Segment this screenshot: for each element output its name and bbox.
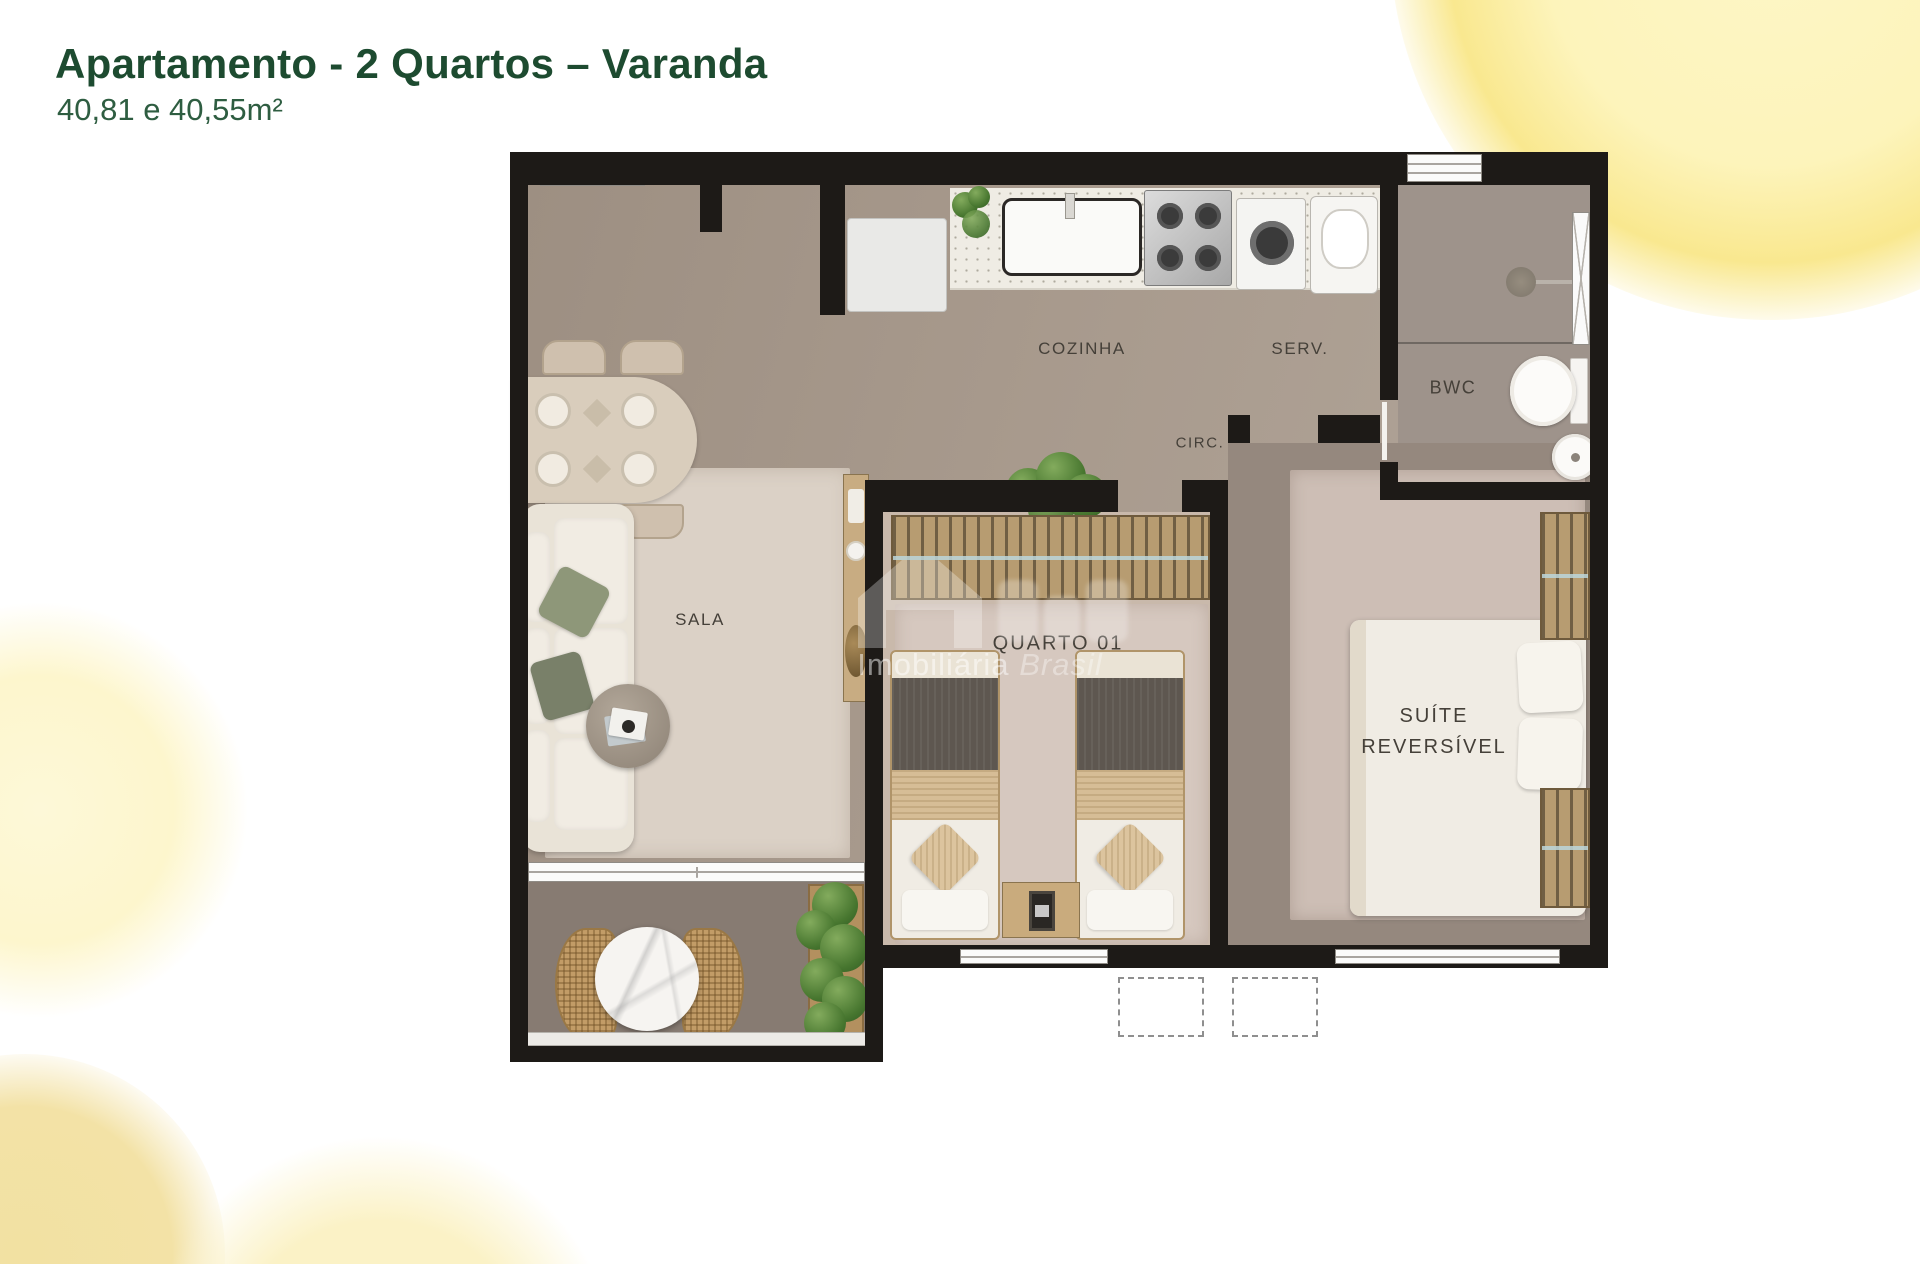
- suite-wardrobe-bottom: [1540, 788, 1590, 908]
- label-suite: SUÍTEREVERSÍVEL: [1361, 701, 1507, 763]
- balcony-plants: [790, 880, 870, 1046]
- balcony-sliding-door: [528, 862, 865, 882]
- laundry-tub: [1310, 196, 1378, 294]
- dining-chair: [620, 340, 684, 375]
- page-subtitle: 40,81 e 40,55m²: [57, 92, 283, 128]
- faucet: [1065, 193, 1075, 219]
- shower-arm: [1532, 280, 1574, 284]
- sofa: [522, 504, 634, 852]
- bwc-window: [1407, 154, 1482, 182]
- shower-glass-panel: [1572, 212, 1590, 345]
- counter-plant: [950, 186, 998, 252]
- bedroom1-window: [960, 949, 1108, 964]
- suite-pillow-1: [1516, 640, 1584, 713]
- label-servico: SERV.: [1271, 339, 1328, 359]
- balcony-marble-table: [595, 927, 699, 1031]
- dining-table: [513, 377, 697, 503]
- watermark-glyph: [998, 580, 1038, 642]
- watermark-glyph: [1044, 596, 1080, 642]
- kitchen-stub-wall: [700, 185, 722, 232]
- label-circulacao: CIRC.: [1176, 435, 1225, 452]
- dashed-extension-box-1: [1118, 977, 1204, 1037]
- dining-chair: [542, 340, 606, 375]
- wall-right: [1590, 152, 1608, 968]
- single-bed-2: [1075, 650, 1185, 940]
- single-bed-1: [890, 650, 1000, 940]
- wall-bwc-left-a: [1380, 152, 1398, 400]
- suite-window: [1335, 949, 1560, 964]
- shower-divider: [1398, 342, 1574, 344]
- label-cozinha: COZINHA: [1038, 339, 1126, 359]
- watermark-glyph: [1086, 580, 1128, 642]
- label-sala: SALA: [675, 610, 725, 630]
- wall-bwc-bottom: [1398, 482, 1608, 500]
- suite-wardrobe-top: [1540, 512, 1590, 640]
- yellow-glow-left: [0, 600, 250, 1020]
- coffee-table: [586, 684, 670, 768]
- kitchen-sink: [1002, 198, 1142, 276]
- toilet-bowl: [1510, 356, 1576, 426]
- wall-suite-top-a: [1228, 415, 1250, 443]
- suite-pillow-2: [1517, 717, 1583, 791]
- wall-balcony-bottom: [510, 1046, 883, 1062]
- balcony-railing: [528, 1032, 865, 1046]
- bwc-door-leaf: [1382, 402, 1387, 460]
- washing-machine: [1236, 198, 1306, 290]
- wall-bwc-left-b: [1380, 462, 1398, 500]
- nightstand: [1002, 882, 1080, 938]
- yellow-glow-bottom-mid: [140, 1134, 620, 1264]
- wall-bedroom1-top-a: [865, 480, 1118, 512]
- floor-plan: COZINHA SERV. CIRC. BWC SALA QUARTO 01 S…: [510, 152, 1608, 1062]
- marketing-page: Apartamento - 2 Quartos – Varanda 40,81 …: [0, 0, 1920, 1264]
- watermark-house-icon: [850, 552, 990, 652]
- fridge-nook-wall: [820, 185, 845, 315]
- watermark-text: Imobiliária Brasil: [835, 647, 1125, 683]
- label-bwc: BWC: [1430, 378, 1477, 399]
- page-title: Apartamento - 2 Quartos – Varanda: [55, 40, 767, 88]
- wall-bedroom-divider: [1210, 480, 1228, 945]
- shower-head: [1506, 267, 1536, 297]
- stove-cooktop: [1144, 190, 1232, 286]
- wall-suite-top-b: [1318, 415, 1380, 443]
- yellow-blob-bottom-left: [0, 1054, 225, 1264]
- refrigerator: [847, 218, 947, 312]
- wall-left: [510, 152, 528, 1062]
- dashed-extension-box-2: [1232, 977, 1318, 1037]
